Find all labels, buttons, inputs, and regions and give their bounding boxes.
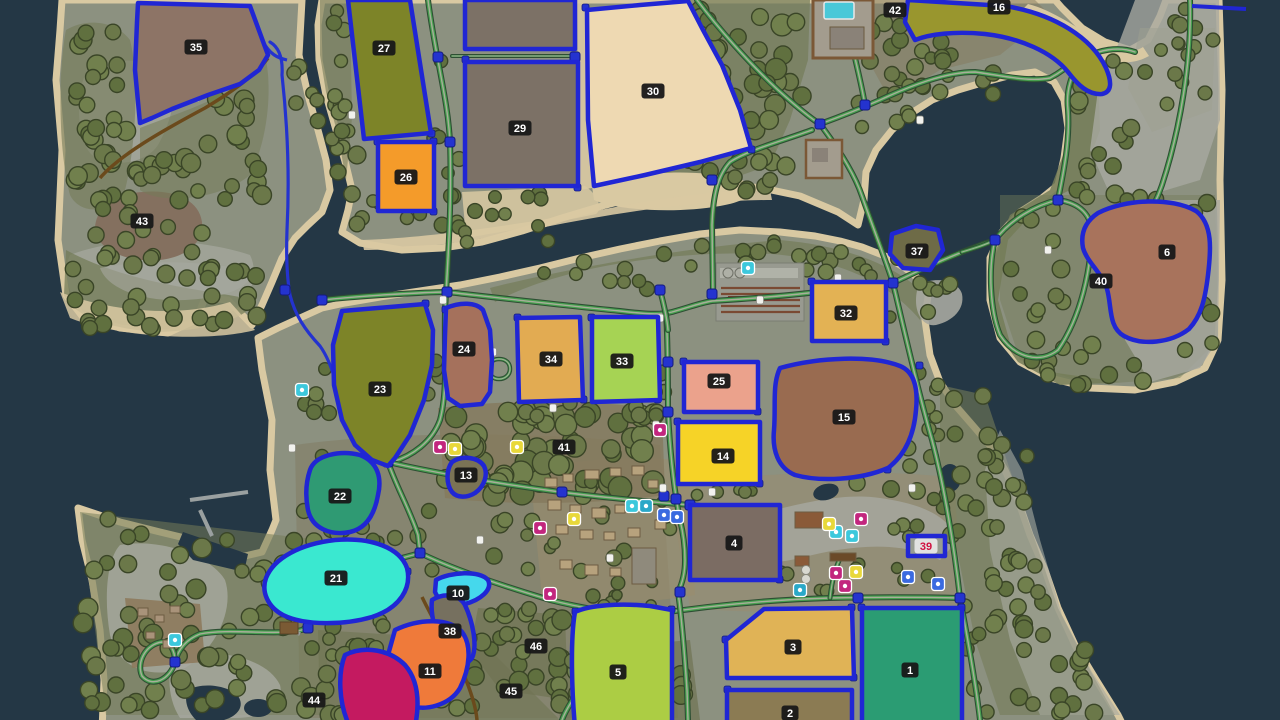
svg-text:15: 15 [838,412,850,424]
svg-text:42: 42 [889,5,901,17]
svg-text:43: 43 [136,216,148,228]
svg-text:44: 44 [308,695,321,707]
svg-text:46: 46 [530,641,542,653]
svg-text:30: 30 [647,86,659,98]
svg-text:41: 41 [558,442,570,454]
svg-text:21: 21 [330,573,342,585]
svg-text:6: 6 [1164,247,1170,259]
svg-text:16: 16 [993,2,1005,14]
svg-text:39: 39 [920,541,932,553]
svg-text:13: 13 [460,470,472,482]
svg-text:38: 38 [444,626,456,638]
svg-text:5: 5 [615,667,621,679]
svg-text:25: 25 [713,376,725,388]
svg-text:24: 24 [458,344,471,356]
svg-text:2: 2 [787,708,793,720]
svg-text:35: 35 [190,42,202,54]
svg-text:1: 1 [907,665,913,677]
svg-text:45: 45 [505,686,517,698]
svg-text:29: 29 [514,123,526,135]
svg-text:11: 11 [424,666,436,678]
svg-text:14: 14 [717,451,730,463]
svg-text:10: 10 [452,588,464,600]
svg-text:37: 37 [911,246,923,258]
svg-text:33: 33 [616,356,628,368]
svg-text:3: 3 [790,642,796,654]
svg-text:32: 32 [840,308,852,320]
svg-text:26: 26 [400,172,412,184]
svg-text:27: 27 [378,43,390,55]
svg-text:22: 22 [334,491,346,503]
svg-text:23: 23 [374,384,386,396]
svg-text:40: 40 [1095,276,1107,288]
svg-text:4: 4 [731,538,738,550]
svg-text:34: 34 [545,354,558,366]
